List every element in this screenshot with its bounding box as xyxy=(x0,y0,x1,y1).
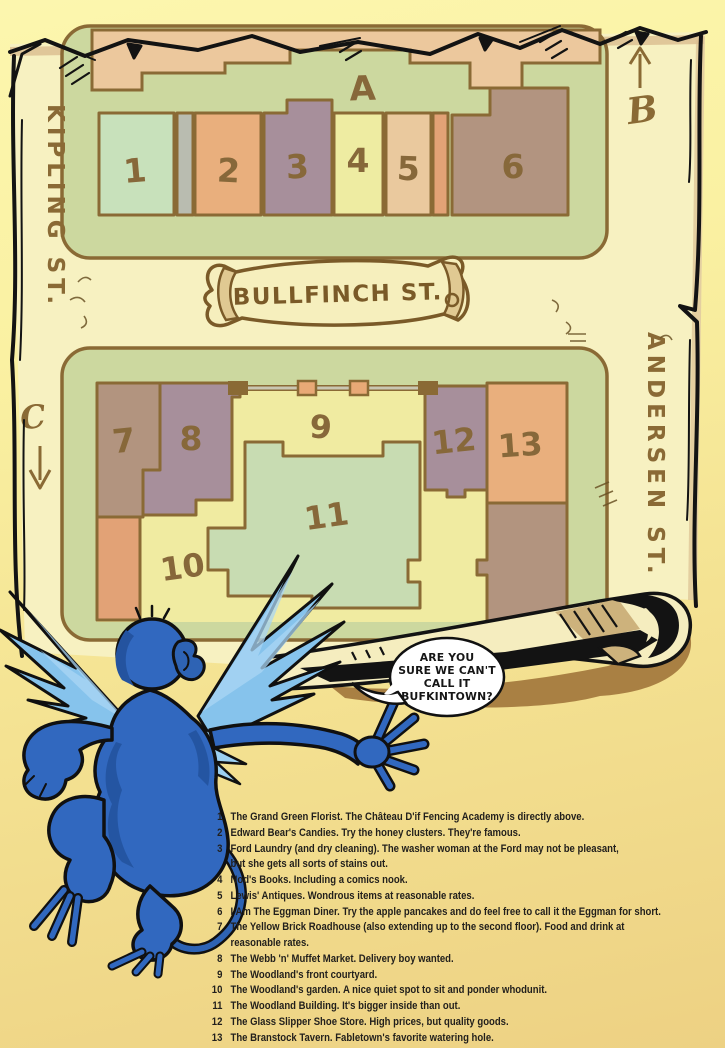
legend-item: 13The Branstock Tavern. Fabletown's favo… xyxy=(208,1031,712,1047)
street-label-andersen: ANDERSEN ST. xyxy=(642,332,668,579)
block-a: A 1 2 3 4 5 6 xyxy=(62,26,607,258)
legend-item-text: The Glass Slipper Shoe Store. High price… xyxy=(231,1015,713,1031)
building-label-2: 2 xyxy=(216,150,241,190)
legend-item-number: 11 xyxy=(208,999,222,1015)
comic-map-page: A 1 2 3 4 5 6 7 8 9 10 xyxy=(0,0,725,1048)
legend-item-text: Nod's Books. Including a comics nook. xyxy=(231,873,713,889)
building-label-7: 7 xyxy=(110,420,137,461)
speech-bubble-line-3: CALL IT xyxy=(424,677,471,690)
legend-item-text: Lewis' Antiques. Wondrous items at reaso… xyxy=(231,889,713,905)
legend-item: 2Edward Bear's Candies. Try the honey cl… xyxy=(208,826,712,842)
speech-bubble-line-4: BUFKINTOWN? xyxy=(401,690,493,703)
legend-item-number: 10 xyxy=(208,983,222,999)
legend-item-text: The Woodland Building. It's bigger insid… xyxy=(231,999,713,1015)
legend-item-text: Ford Laundry (and dry cleaning). The was… xyxy=(231,842,713,874)
block-woodland: 7 8 9 10 11 12 13 xyxy=(62,348,607,640)
legend-item-number: 6 xyxy=(208,905,222,921)
building-label-10: 10 xyxy=(158,545,207,589)
legend-item-text: The Woodland's front courtyard. xyxy=(231,968,713,984)
legend-item-text: The Woodland's garden. A nice quiet spot… xyxy=(231,983,713,999)
legend-item-text: The Branstock Tavern. Fabletown's favori… xyxy=(231,1031,713,1047)
legend-item-text: The Grand Green Florist. The Château D'i… xyxy=(231,810,713,826)
legend-item: 9The Woodland's front courtyard. xyxy=(208,968,712,984)
legend-item-number: 4 xyxy=(208,873,222,889)
building-label-1: 1 xyxy=(122,150,148,191)
legend-item-number: 3 xyxy=(208,842,222,874)
building-label-9: 9 xyxy=(308,407,333,446)
legend-item-number: 2 xyxy=(208,826,222,842)
legend-item: 4Nod's Books. Including a comics nook. xyxy=(208,873,712,889)
legend-item-number: 13 xyxy=(208,1031,222,1047)
legend-item: 8The Webb 'n' Muffet Market. Delivery bo… xyxy=(208,952,712,968)
legend-item-text: The Yellow Brick Roadhouse (also extendi… xyxy=(231,920,713,952)
gray-strip xyxy=(177,113,193,215)
banner-label: BULLFINCH ST. xyxy=(232,279,443,310)
building-region-tavern-rear xyxy=(477,503,567,622)
building-label-4: 4 xyxy=(347,141,370,180)
legend-item-number: 5 xyxy=(208,889,222,905)
legend: 1The Grand Green Florist. The Château D'… xyxy=(208,810,712,1046)
speech-bubble-line-1: ARE YOU xyxy=(420,651,475,664)
building-label-6: 6 xyxy=(502,147,525,186)
building-label-3: 3 xyxy=(285,146,310,186)
marker-c: C xyxy=(18,397,48,438)
building-label-11: 11 xyxy=(302,494,351,538)
legend-item: 3Ford Laundry (and dry cleaning). The wa… xyxy=(208,842,712,874)
legend-item-number: 7 xyxy=(208,920,222,952)
marker-a: A xyxy=(349,69,377,110)
building-label-12: 12 xyxy=(430,420,478,462)
building-label-5: 5 xyxy=(396,149,420,189)
legend-item: 12The Glass Slipper Shoe Store. High pri… xyxy=(208,1015,712,1031)
legend-item-text: Edward Bear's Candies. Try the honey clu… xyxy=(231,826,713,842)
legend-item-number: 9 xyxy=(208,968,222,984)
marker-b: B xyxy=(623,87,660,133)
legend-item-text: I Am The Eggman Diner. Try the apple pan… xyxy=(231,905,713,921)
legend-item: 1The Grand Green Florist. The Château D'… xyxy=(208,810,712,826)
speech-bubble-line-2: SURE WE CAN'T xyxy=(398,664,496,677)
legend-item: 10The Woodland's garden. A nice quiet sp… xyxy=(208,983,712,999)
legend-item-number: 8 xyxy=(208,952,222,968)
street-label-kipling: KIPLING ST. xyxy=(42,104,68,309)
building-label-13: 13 xyxy=(497,425,544,466)
legend-item: 11The Woodland Building. It's bigger ins… xyxy=(208,999,712,1015)
legend-item: 7The Yellow Brick Roadhouse (also extend… xyxy=(208,920,712,952)
orange-strip-top xyxy=(433,113,448,215)
legend-item: 5Lewis' Antiques. Wondrous items at reas… xyxy=(208,889,712,905)
legend-item-text: The Webb 'n' Muffet Market. Delivery boy… xyxy=(231,952,713,968)
legend-item-number: 1 xyxy=(208,810,222,826)
legend-item: 6I Am The Eggman Diner. Try the apple pa… xyxy=(208,905,712,921)
monkey-right-hand xyxy=(355,702,424,786)
orange-strip-bottom xyxy=(97,517,140,620)
building-label-8: 8 xyxy=(180,419,203,458)
legend-item-number: 12 xyxy=(208,1015,222,1031)
